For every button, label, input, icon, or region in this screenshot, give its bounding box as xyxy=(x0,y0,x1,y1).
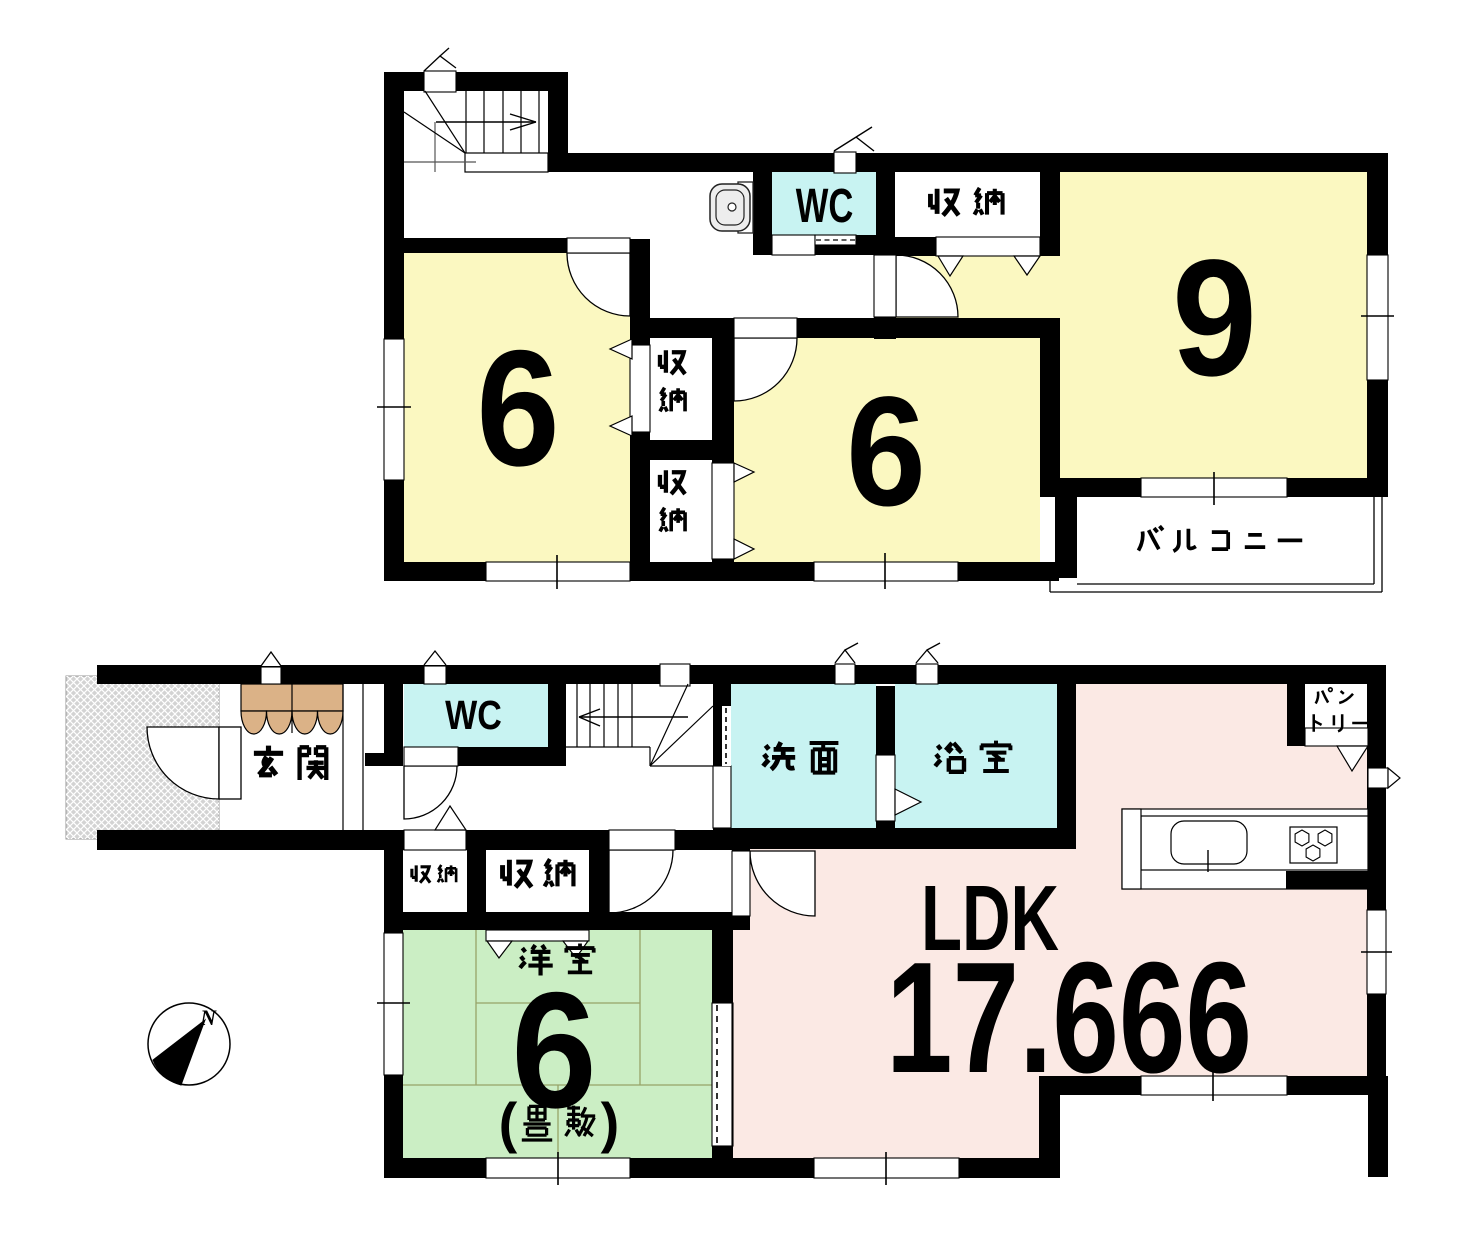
svg-text:WC: WC xyxy=(796,178,854,232)
svg-text:17.666: 17.666 xyxy=(886,930,1252,1106)
svg-text:6: 6 xyxy=(476,316,560,500)
svg-text:N: N xyxy=(199,1005,217,1030)
svg-text:9: 9 xyxy=(1172,225,1257,410)
svg-text:WC: WC xyxy=(445,692,502,738)
svg-text:): ) xyxy=(601,1091,620,1154)
svg-text:(: ( xyxy=(499,1091,518,1154)
svg-text:6: 6 xyxy=(846,363,926,538)
